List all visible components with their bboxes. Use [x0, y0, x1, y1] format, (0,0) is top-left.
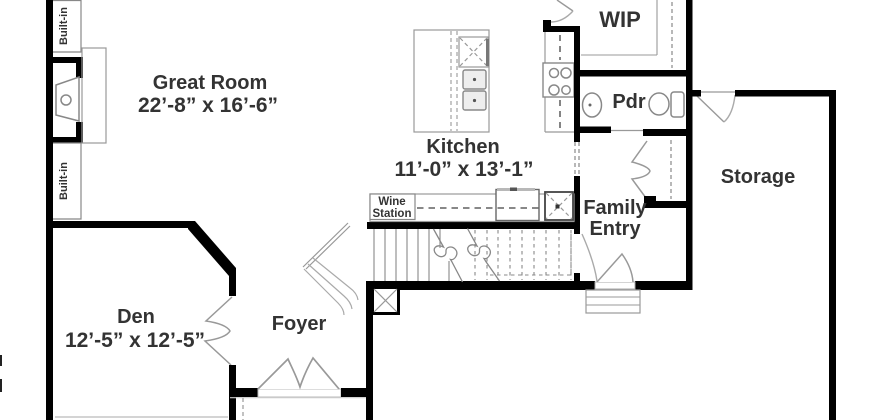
svg-text:Kitchen: Kitchen: [426, 136, 499, 158]
svg-text:Family: Family: [583, 197, 647, 219]
svg-text:Foyer: Foyer: [272, 313, 327, 335]
svg-text:22’-8” x 16’-6”: 22’-8” x 16’-6”: [138, 94, 278, 117]
svg-text:12’-5” x 12’-5”: 12’-5” x 12’-5”: [65, 329, 205, 352]
svg-text:Built-in: Built-in: [58, 162, 70, 200]
svg-text:11’-0” x 13’-1”: 11’-0” x 13’-1”: [395, 158, 534, 181]
svg-text:Station: Station: [373, 208, 412, 220]
svg-text:Entry: Entry: [589, 218, 641, 240]
svg-text:Built-in: Built-in: [58, 7, 70, 45]
svg-text:Den: Den: [117, 306, 155, 328]
svg-text:Storage: Storage: [721, 166, 795, 188]
svg-text:Wine: Wine: [378, 196, 405, 208]
svg-text:Great Room: Great Room: [153, 72, 267, 94]
svg-text:WIP: WIP: [599, 7, 641, 32]
svg-text:Pdr: Pdr: [612, 91, 646, 113]
